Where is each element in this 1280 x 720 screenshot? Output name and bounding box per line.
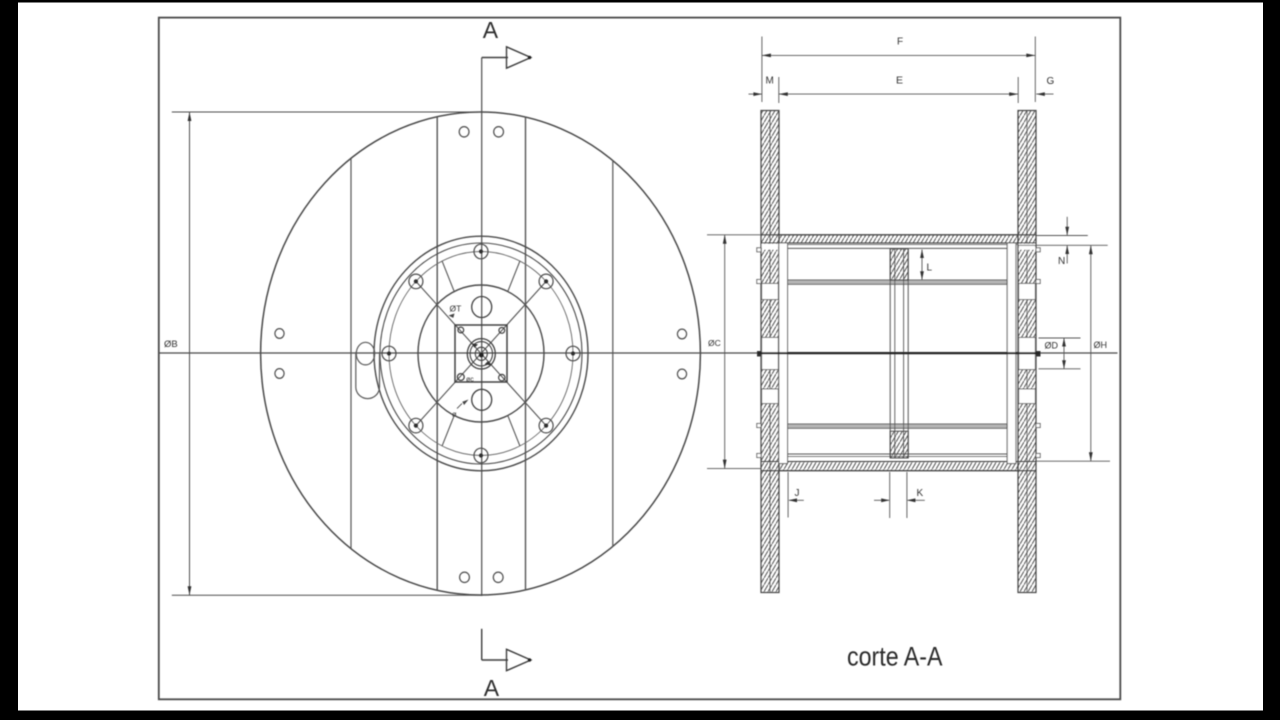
svg-text:ØC: ØC bbox=[708, 338, 721, 348]
svg-text:K: K bbox=[917, 488, 924, 499]
svg-text:ØD: ØD bbox=[1045, 341, 1059, 351]
svg-text:A: A bbox=[484, 675, 500, 701]
svg-text:ØH: ØH bbox=[1094, 340, 1108, 350]
svg-text:ØB: ØB bbox=[164, 339, 178, 350]
svg-text:M: M bbox=[766, 76, 774, 87]
svg-text:L: L bbox=[927, 263, 933, 274]
svg-text:A: A bbox=[483, 17, 499, 43]
svg-text:ØT: ØT bbox=[450, 304, 462, 314]
svg-text:F: F bbox=[897, 37, 903, 48]
svg-text:G: G bbox=[1047, 76, 1055, 87]
svg-text:N: N bbox=[1058, 256, 1065, 267]
svg-text:corte A-A: corte A-A bbox=[847, 642, 943, 672]
svg-text:øc: øc bbox=[466, 377, 474, 384]
svg-text:ø: ø bbox=[452, 410, 457, 419]
svg-text:E: E bbox=[896, 75, 903, 87]
svg-text:J: J bbox=[795, 488, 800, 499]
